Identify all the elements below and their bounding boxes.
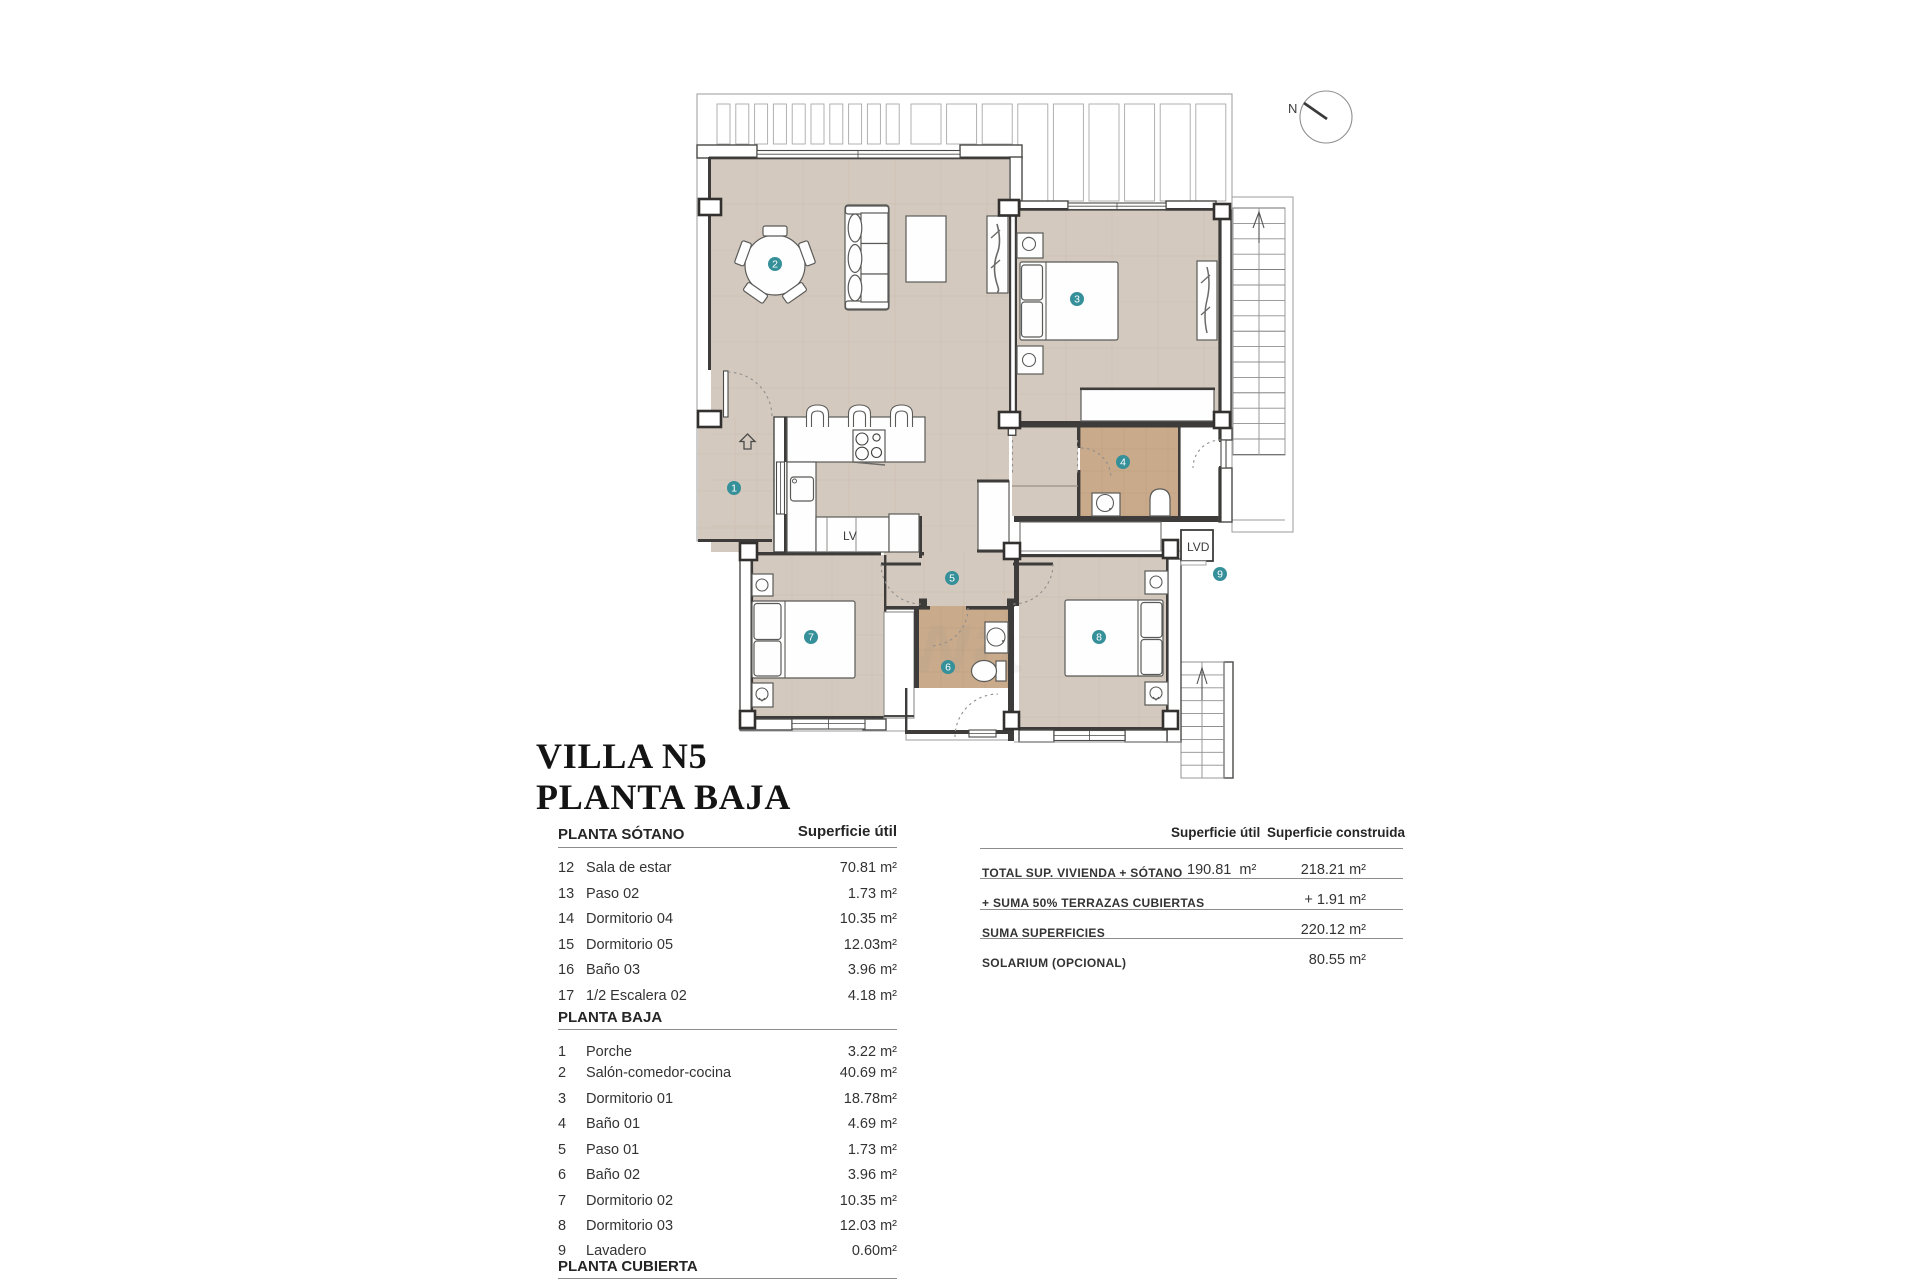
svg-text:7: 7 (808, 632, 814, 644)
svg-text:5: 5 (949, 573, 955, 585)
svg-text:1: 1 (731, 483, 737, 495)
svg-text:6: 6 (945, 662, 951, 674)
svg-text:3: 3 (1074, 294, 1080, 306)
svg-text:LV: LV (843, 529, 857, 543)
svg-text:2: 2 (772, 259, 778, 271)
svg-text:LVD: LVD (1187, 540, 1210, 554)
svg-text:4: 4 (1120, 457, 1126, 469)
svg-text:N: N (1288, 101, 1297, 116)
svg-text:8: 8 (1096, 632, 1102, 644)
svg-text:9: 9 (1217, 569, 1223, 581)
